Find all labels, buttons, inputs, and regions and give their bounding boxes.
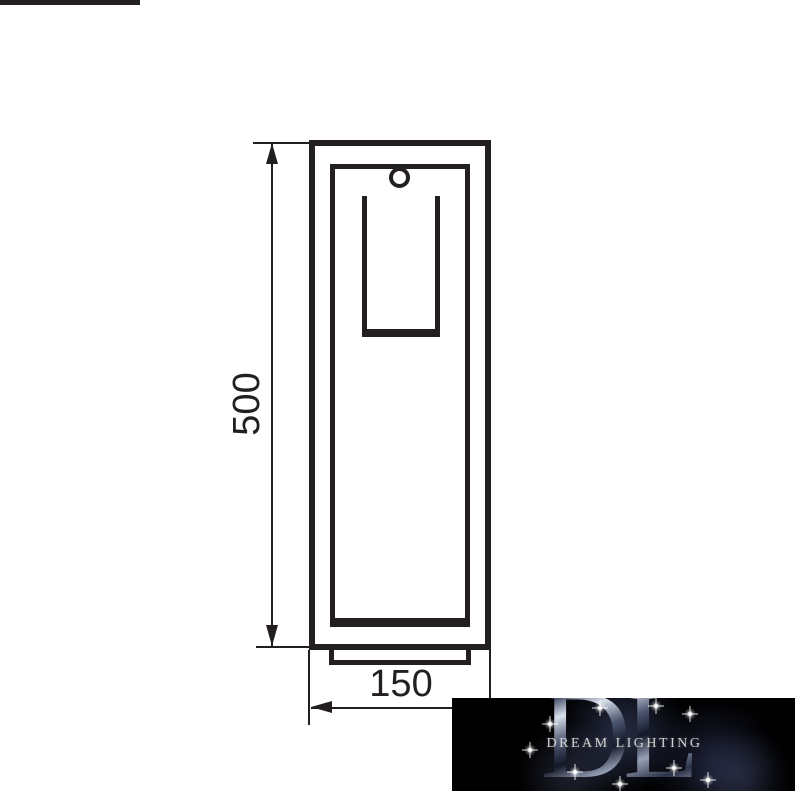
arrow-left-icon	[311, 701, 332, 713]
sparkle-icon	[542, 716, 558, 732]
sparkle-icon	[700, 772, 716, 788]
height-extension-line-top	[253, 142, 310, 144]
sparkle-icon	[682, 706, 698, 722]
sparkle-icon	[592, 700, 608, 716]
technical-drawing-canvas: 500 150 DL DREAM LIGHTING	[0, 0, 800, 800]
width-extension-line-right	[489, 650, 491, 698]
lamp-window	[362, 196, 440, 337]
arrow-down-icon	[266, 625, 278, 646]
height-dimension-label: 500	[222, 354, 272, 454]
width-extension-line-left	[308, 650, 310, 725]
width-dimension-label: 150	[351, 659, 451, 709]
sparkle-icon	[612, 776, 628, 791]
sparkle-icon	[666, 760, 682, 776]
sparkle-icon	[567, 764, 583, 780]
height-extension-line-bottom	[256, 646, 310, 648]
brand-logo: DL DREAM LIGHTING	[452, 698, 795, 791]
lamp-cap-bar	[0, 0, 140, 5]
sparkle-icon	[522, 742, 538, 758]
sparkle-icon	[648, 698, 664, 714]
arrow-up-icon	[266, 143, 278, 164]
bolt-circle-icon	[389, 167, 410, 188]
